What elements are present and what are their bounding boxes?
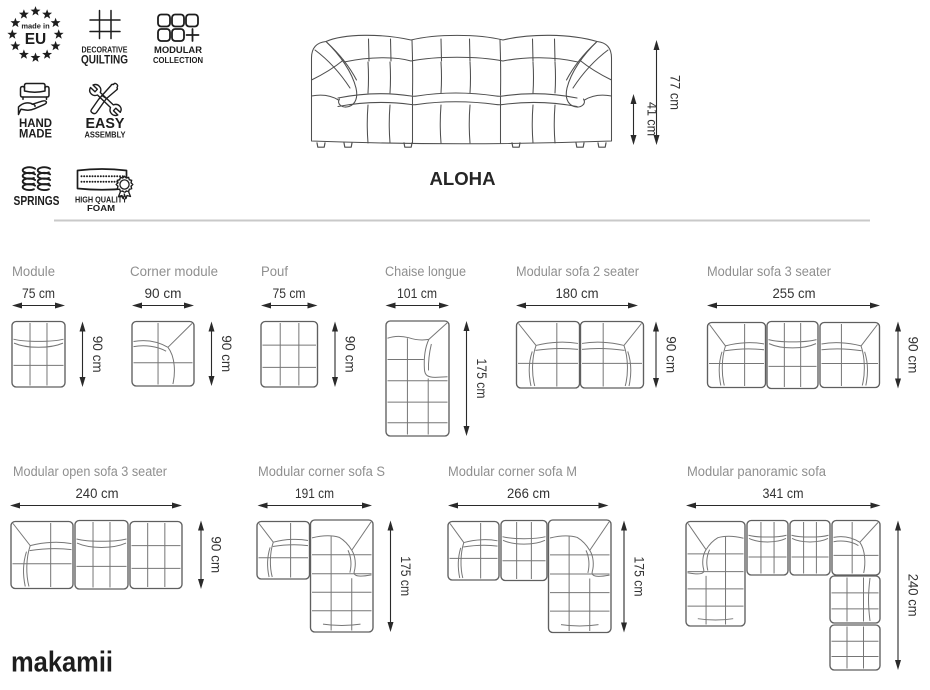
svg-text:FOAM: FOAM — [87, 203, 115, 213]
svg-text:90 cm: 90 cm — [90, 336, 106, 373]
svg-text:made in: made in — [21, 22, 50, 31]
svg-text:191 cm: 191 cm — [295, 485, 334, 501]
svg-text:77 cm: 77 cm — [668, 75, 683, 110]
svg-text:175 cm: 175 cm — [398, 556, 414, 596]
svg-text:75 cm: 75 cm — [22, 285, 55, 301]
svg-text:266 cm: 266 cm — [507, 485, 550, 501]
svg-text:MODULAR: MODULAR — [154, 45, 202, 56]
svg-text:DECORATIVE: DECORATIVE — [82, 46, 129, 55]
svg-text:341 cm: 341 cm — [763, 485, 804, 501]
svg-text:Pouf: Pouf — [261, 264, 288, 279]
svg-text:240 cm: 240 cm — [76, 485, 119, 501]
svg-text:175 cm: 175 cm — [474, 359, 490, 399]
svg-text:ASSEMBLY: ASSEMBLY — [85, 130, 126, 140]
svg-text:75 cm: 75 cm — [273, 285, 306, 301]
svg-text:101 cm: 101 cm — [397, 285, 437, 301]
svg-text:MADE: MADE — [19, 129, 52, 141]
svg-text:90 cm: 90 cm — [145, 285, 182, 301]
svg-text:Modular corner sofa M: Modular corner sofa M — [448, 464, 577, 479]
svg-text:240 cm: 240 cm — [906, 574, 922, 617]
svg-text:Module: Module — [12, 264, 55, 279]
svg-text:90 cm: 90 cm — [343, 336, 359, 373]
svg-text:Corner module: Corner module — [130, 264, 218, 279]
svg-text:QUILTING: QUILTING — [81, 55, 128, 67]
svg-text:makamii: makamii — [11, 647, 113, 679]
svg-text:Modular corner sofa S: Modular corner sofa S — [258, 464, 385, 479]
svg-text:180 cm: 180 cm — [556, 285, 599, 301]
svg-text:Modular sofa 3 seater: Modular sofa 3 seater — [707, 264, 831, 279]
svg-text:Modular sofa 2 seater: Modular sofa 2 seater — [516, 264, 639, 279]
svg-text:90 cm: 90 cm — [219, 335, 235, 372]
svg-text:255 cm: 255 cm — [773, 285, 816, 301]
svg-text:Chaise longue: Chaise longue — [385, 264, 466, 279]
svg-text:Modular panoramic sofa: Modular panoramic sofa — [687, 464, 826, 479]
svg-text:COLLECTION: COLLECTION — [153, 56, 203, 65]
svg-text:175 cm: 175 cm — [632, 557, 648, 597]
svg-text:41 cm: 41 cm — [645, 102, 660, 136]
svg-text:ALOHA: ALOHA — [430, 168, 496, 189]
svg-text:Modular open sofa 3 seater: Modular open sofa 3 seater — [13, 464, 167, 479]
svg-text:90 cm: 90 cm — [906, 337, 922, 374]
svg-text:90 cm: 90 cm — [664, 336, 680, 373]
svg-text:90 cm: 90 cm — [209, 536, 225, 573]
svg-text:SPRINGS: SPRINGS — [14, 194, 60, 208]
svg-text:EU: EU — [25, 31, 47, 48]
